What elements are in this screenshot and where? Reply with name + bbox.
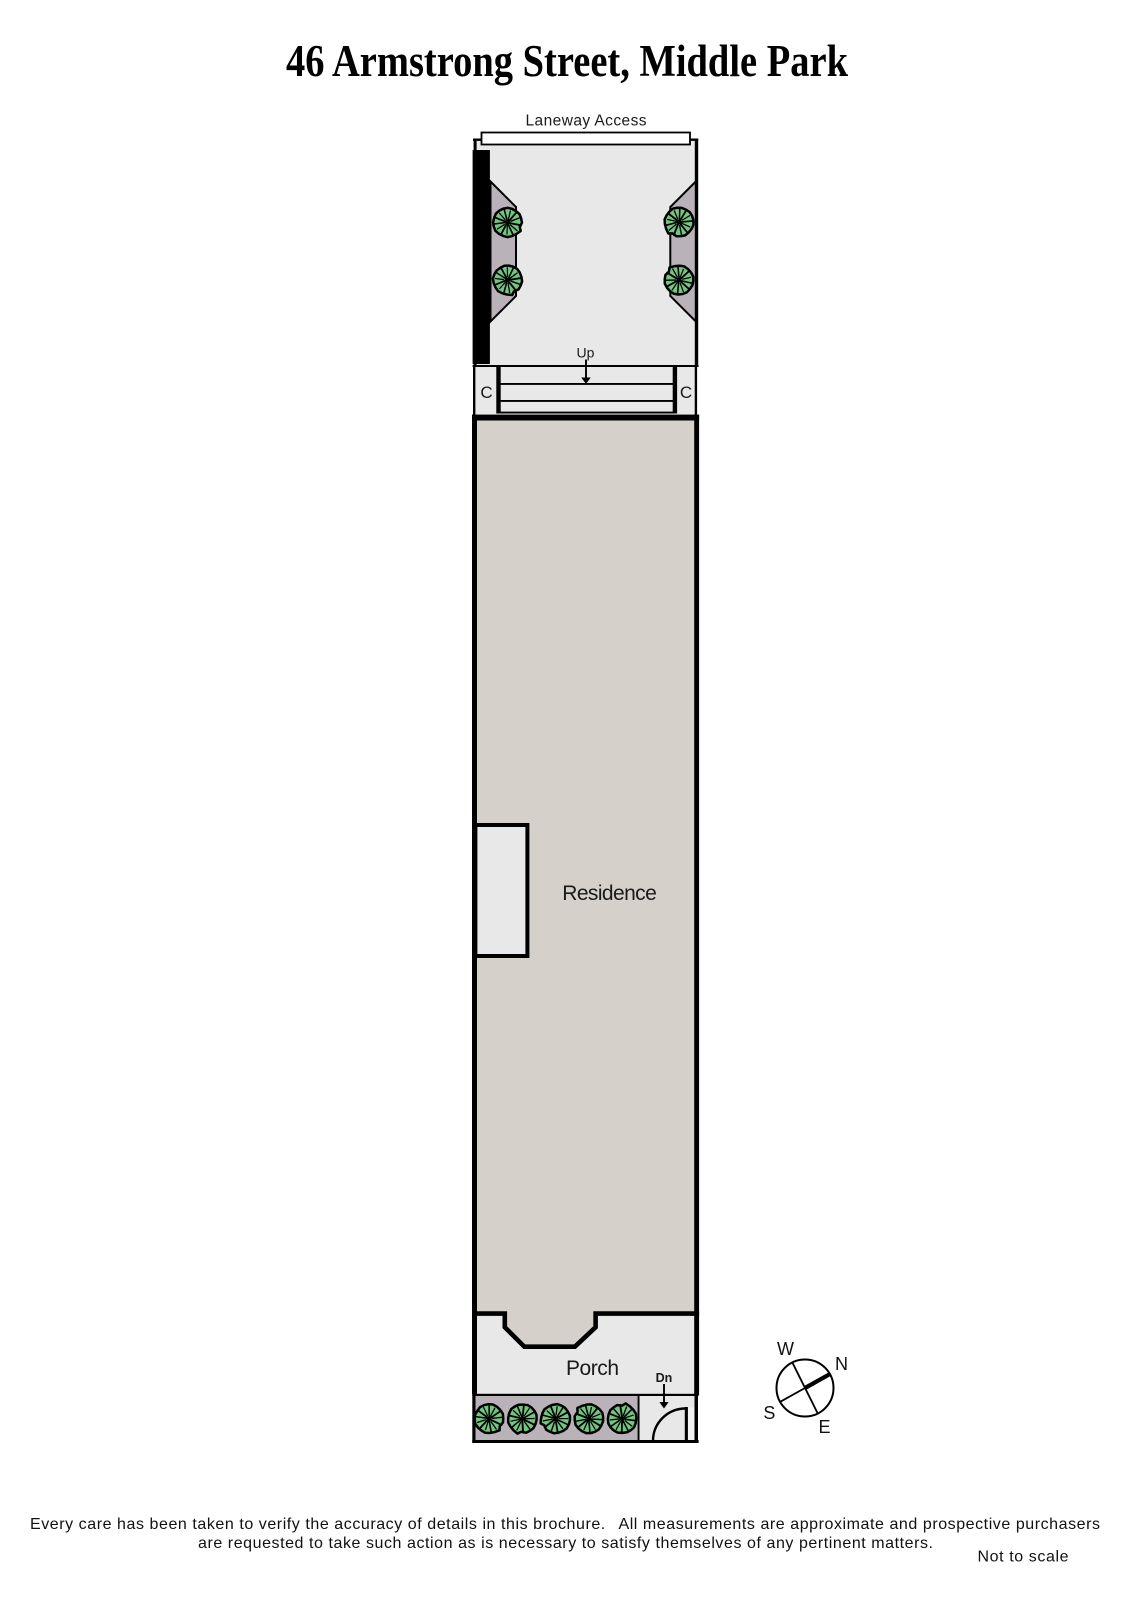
svg-text:C: C <box>680 383 692 402</box>
svg-text:Dn: Dn <box>656 1371 673 1385</box>
svg-text:W: W <box>777 1339 794 1359</box>
svg-text:Up: Up <box>577 345 595 361</box>
svg-text:Residence: Residence <box>562 882 657 905</box>
svg-text:Every care has been taken to v: Every care has been taken to verify the … <box>30 1516 1100 1533</box>
svg-text:N: N <box>835 1354 848 1374</box>
svg-text:Porch: Porch <box>566 1357 619 1380</box>
svg-text:Not to scale: Not to scale <box>978 1548 1069 1565</box>
svg-text:are requested to take such act: are requested to take such action as is … <box>198 1535 933 1552</box>
svg-text:C: C <box>480 383 492 402</box>
svg-text:S: S <box>763 1403 775 1423</box>
svg-text:46 Armstrong Street, Middle Pa: 46 Armstrong Street, Middle Park <box>286 36 848 86</box>
svg-text:Laneway Access: Laneway Access <box>526 113 647 130</box>
svg-text:E: E <box>818 1417 830 1437</box>
